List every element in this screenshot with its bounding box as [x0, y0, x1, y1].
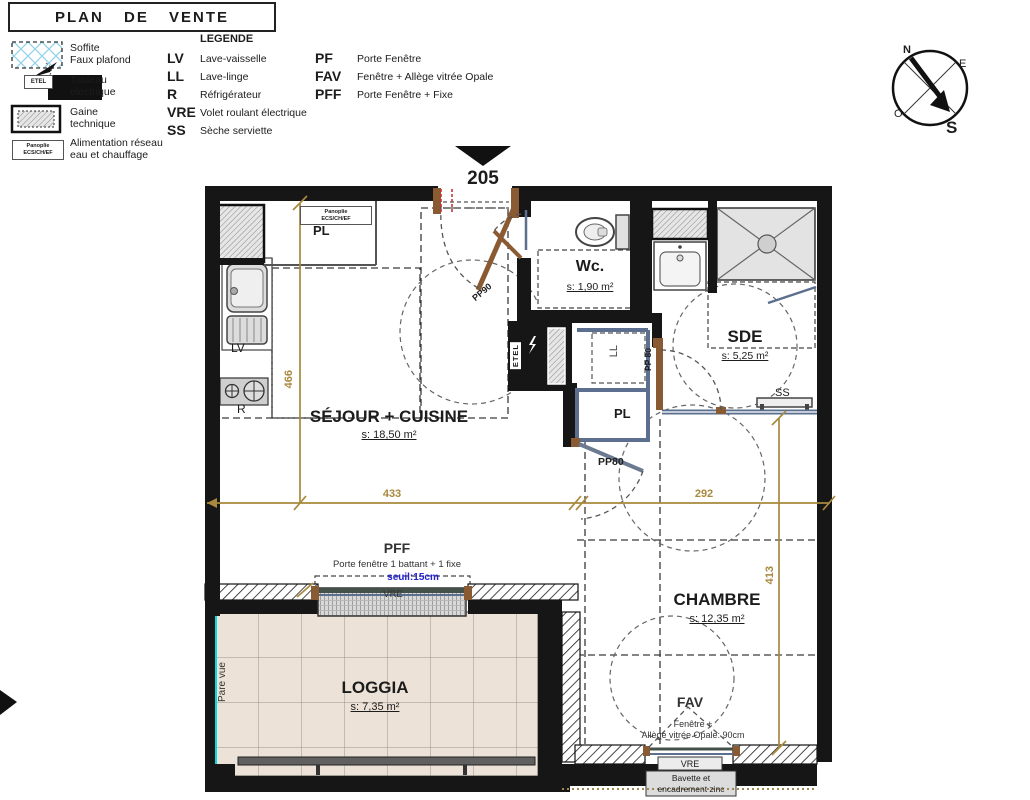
compass-east: E — [959, 58, 966, 71]
legend-alim-line2: eau et chauffage — [70, 149, 148, 161]
legend-alim-line1: Alimentation réseau — [70, 137, 163, 149]
dim-chambre-width: 292 — [695, 488, 713, 501]
legend-soffite-line2: Faux plafond — [70, 54, 131, 66]
legend-panoplie-line2: ECS/CH/EF — [23, 150, 52, 157]
legend-gaine-line2: technique — [70, 118, 116, 130]
fav-desc1: Fenêtre + — [674, 719, 713, 729]
unit-number: 205 — [467, 168, 499, 190]
room-wc-name: Wc. — [576, 258, 604, 276]
etel-label: ETEL — [510, 342, 521, 369]
cooktop — [220, 378, 268, 405]
etel-gaine — [548, 328, 565, 384]
legend-abbr-ll: LL — [167, 68, 184, 84]
door-chambre-label: PP80 — [598, 456, 624, 468]
legend-gaine-line1: Gaine — [70, 106, 98, 118]
legend-label-lv: Lave-vaisselle — [200, 53, 267, 65]
kitchen-sink — [222, 258, 272, 350]
plan-drawing — [0, 0, 1030, 800]
room-sde-name: SDE — [728, 327, 763, 347]
fridge-label: R — [237, 403, 246, 417]
page-title: PLAN DE VENTE — [8, 2, 276, 32]
panoplie-box: Panoplie ECS/CH/EF — [300, 206, 372, 225]
legend-abbr-vre: VRE — [167, 104, 196, 120]
closet-entry-label: PL — [313, 224, 330, 239]
washbasin — [654, 242, 706, 290]
pff-seuil-note: seuil:15cm — [387, 572, 439, 584]
legend-label-pff: Porte Fenêtre + Fixe — [357, 89, 453, 101]
compass-south: S — [946, 118, 957, 138]
dim-sejour-width: 433 — [383, 488, 401, 501]
legend-label-ss: Sèche serviette — [200, 125, 272, 137]
room-chambre-area: s: 12,35 m² — [689, 613, 744, 626]
legend-abbr-r: R — [167, 86, 177, 102]
entrance-marker-icon — [455, 146, 511, 166]
pff-desc: Porte fenêtre 1 battant + 1 fixe — [333, 560, 461, 571]
panoplie-line1: Panoplie — [325, 209, 348, 216]
compass-west: O — [894, 108, 903, 121]
legend-etel-tag: ETEL — [24, 75, 53, 89]
legend-label-vre: Volet roulant électrique — [200, 107, 307, 119]
legend-soffite-line1: Soffite — [70, 42, 100, 54]
dim-chambre-height: 413 — [764, 566, 776, 584]
legend-label-ll: Lave-linge — [200, 71, 248, 83]
room-loggia-area: s: 7,35 m² — [351, 701, 400, 714]
legend-abbr-ss: SS — [167, 122, 186, 138]
compass-north: N — [903, 44, 911, 57]
room-loggia-name: LOGGIA — [341, 678, 408, 698]
legend-label-pf: Porte Fenêtre — [357, 53, 421, 65]
room-wc-area: s: 1,90 m² — [567, 281, 614, 293]
legend-heading: LEGENDE — [200, 33, 253, 46]
towel-dryer — [757, 398, 812, 411]
legend-tableau-line2: electrique — [70, 86, 116, 98]
left-edge-arrow-icon — [0, 690, 17, 715]
toilet — [576, 215, 629, 249]
towel-dryer-label: SS — [775, 387, 790, 400]
legend-abbr-lv: LV — [167, 50, 184, 66]
fav-bavette-line1: Bavette et — [672, 773, 710, 784]
panoplie-line2: ECS/CH/EF — [321, 216, 350, 223]
closet-hall-label: PL — [614, 407, 631, 422]
page-title-text: PLAN DE VENTE — [55, 9, 229, 26]
room-sejour-name: SÉJOUR + CUISINE — [310, 407, 468, 427]
fav-bavette-line2: encadrement zinc — [657, 784, 724, 795]
pff-label: PFF — [384, 540, 410, 556]
dishwasher-label: LV — [231, 342, 245, 356]
legend-panoplie-box: Panoplie ECS/CH/EF — [12, 140, 64, 160]
fav-label: FAV — [677, 694, 703, 710]
legend-abbr-pf: PF — [315, 50, 333, 66]
room-chambre-name: CHAMBRE — [674, 590, 761, 610]
dim-kitchen-height: 466 — [283, 370, 295, 388]
legend-tableau-line1: Tableau — [70, 74, 107, 86]
floor-plan-canvas: PLAN DE VENTE Soffite Faux plafond ETEL … — [0, 0, 1030, 800]
pare-vue-label: Pare vue — [217, 662, 228, 702]
legend-abbr-pff: PFF — [315, 86, 341, 102]
legend-panoplie-line1: Panoplie — [27, 143, 50, 150]
shower — [717, 208, 816, 303]
legend-abbr-fav: FAV — [315, 68, 341, 84]
compass-icon — [893, 51, 967, 125]
room-sde-area: s: 5,25 m² — [722, 350, 769, 362]
legend-label-fav: Fenêtre + Allège vitrée Opale — [357, 71, 493, 83]
fav-desc2: Allège vitrée Opale: 90cm — [641, 730, 744, 740]
fav-bavette-box: Bavette et encadrement zinc — [646, 771, 736, 796]
legend-label-r: Réfrigérateur — [200, 89, 261, 101]
pff-vre-label: VRE — [383, 590, 403, 601]
washer-label: LL — [608, 345, 620, 357]
room-sejour-area: s: 18,50 m² — [361, 429, 416, 442]
door-sde-label: PP 80 — [643, 348, 653, 371]
fav-vre-label: VRE — [658, 757, 722, 770]
